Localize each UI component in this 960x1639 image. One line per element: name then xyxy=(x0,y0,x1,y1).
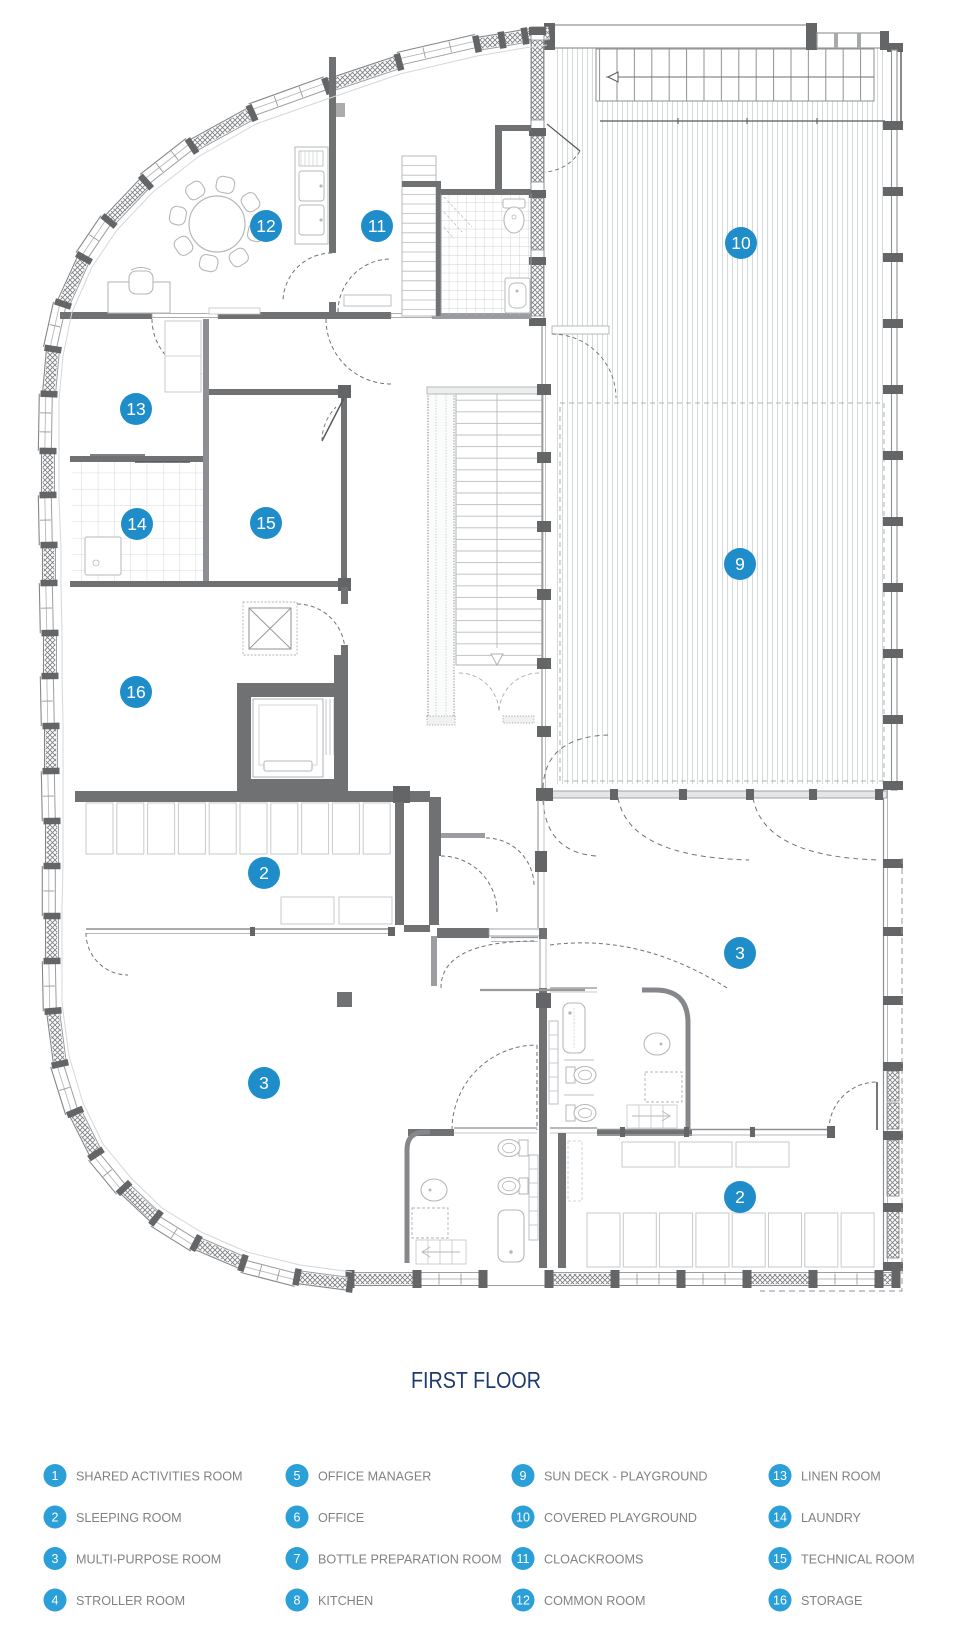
svg-text:OFFICE: OFFICE xyxy=(318,1511,364,1525)
svg-text:BOTTLE PREPARATION ROOM: BOTTLE PREPARATION ROOM xyxy=(318,1552,502,1566)
svg-text:10: 10 xyxy=(731,233,751,253)
svg-text:STROLLER ROOM: STROLLER ROOM xyxy=(76,1594,185,1608)
svg-text:11: 11 xyxy=(517,1552,530,1566)
svg-text:12: 12 xyxy=(256,216,275,236)
svg-text:6: 6 xyxy=(294,1511,301,1525)
svg-text:3: 3 xyxy=(259,1073,269,1093)
svg-text:COMMON ROOM: COMMON ROOM xyxy=(544,1594,645,1608)
svg-text:14: 14 xyxy=(127,514,147,534)
svg-text:3: 3 xyxy=(52,1552,59,1566)
svg-text:LAUNDRY: LAUNDRY xyxy=(801,1511,862,1525)
svg-text:OFFICE MANAGER: OFFICE MANAGER xyxy=(318,1469,431,1483)
svg-text:16: 16 xyxy=(126,682,145,702)
svg-text:7: 7 xyxy=(294,1552,301,1566)
svg-text:MULTI-PURPOSE ROOM: MULTI-PURPOSE ROOM xyxy=(76,1552,221,1566)
svg-text:4: 4 xyxy=(52,1594,59,1608)
svg-text:14: 14 xyxy=(773,1511,787,1525)
svg-text:2: 2 xyxy=(735,1187,745,1207)
svg-text:COVERED PLAYGROUND: COVERED PLAYGROUND xyxy=(544,1511,697,1525)
svg-text:LINEN ROOM: LINEN ROOM xyxy=(801,1469,881,1483)
svg-text:11: 11 xyxy=(368,216,386,236)
svg-text:STORAGE: STORAGE xyxy=(801,1594,862,1608)
svg-text:9: 9 xyxy=(520,1469,527,1483)
svg-text:KITCHEN: KITCHEN xyxy=(318,1594,373,1608)
svg-text:FIRST FLOOR: FIRST FLOOR xyxy=(411,1367,541,1393)
svg-text:13: 13 xyxy=(773,1469,787,1483)
svg-text:16: 16 xyxy=(773,1594,787,1608)
svg-text:SUN DECK - PLAYGROUND: SUN DECK - PLAYGROUND xyxy=(544,1469,708,1483)
svg-text:15: 15 xyxy=(256,513,275,533)
svg-text:13: 13 xyxy=(126,399,145,419)
svg-text:SLEEPING ROOM: SLEEPING ROOM xyxy=(76,1511,182,1525)
svg-text:TECHNICAL ROOM: TECHNICAL ROOM xyxy=(801,1552,915,1566)
svg-text:CLOACKROOMS: CLOACKROOMS xyxy=(544,1552,643,1566)
svg-text:SHARED ACTIVITIES ROOM: SHARED ACTIVITIES ROOM xyxy=(76,1469,243,1483)
svg-text:12: 12 xyxy=(516,1594,530,1608)
svg-text:9: 9 xyxy=(735,554,745,574)
svg-text:2: 2 xyxy=(259,863,269,883)
svg-text:15: 15 xyxy=(773,1552,787,1566)
svg-text:5: 5 xyxy=(294,1469,301,1483)
svg-text:3: 3 xyxy=(735,943,745,963)
svg-text:8: 8 xyxy=(294,1594,301,1608)
svg-text:2: 2 xyxy=(52,1511,59,1525)
svg-text:10: 10 xyxy=(516,1511,530,1525)
svg-text:1: 1 xyxy=(52,1469,59,1483)
